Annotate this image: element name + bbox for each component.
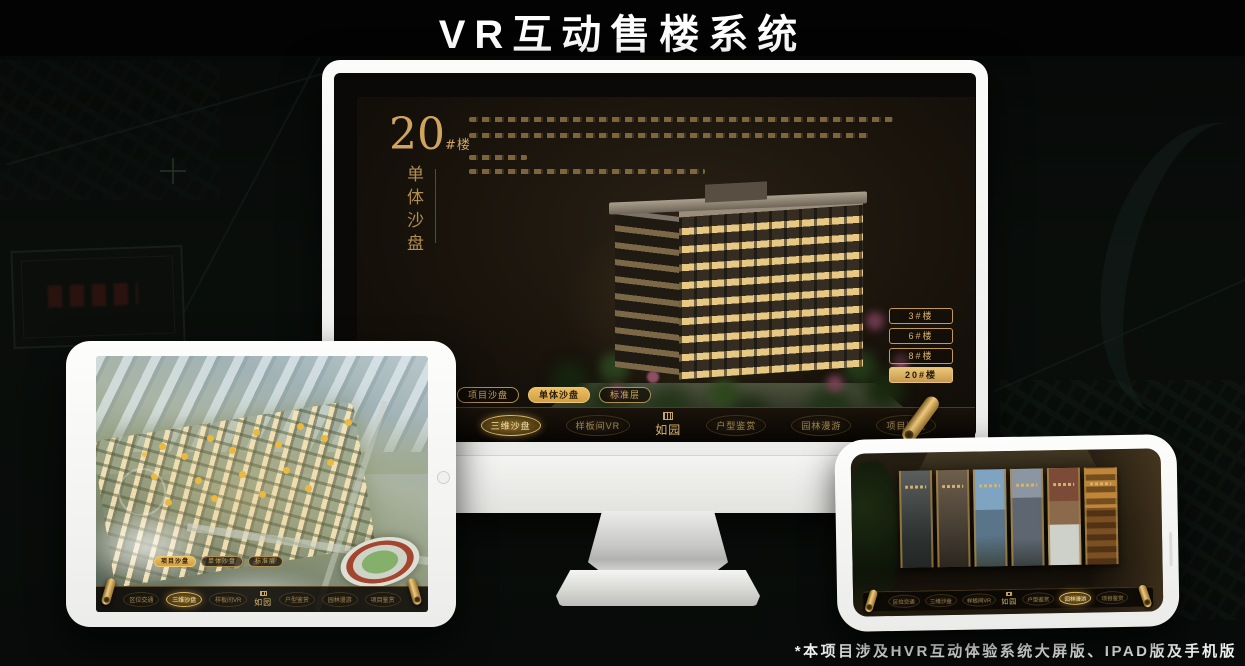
panel-caption <box>942 485 962 488</box>
description-text-line <box>469 117 893 122</box>
gallery-panel-elevation[interactable] <box>1010 468 1045 566</box>
ruyuan-seal-icon <box>663 412 673 420</box>
nav-item-unit-appreciation[interactable]: 户型鉴赏 <box>279 592 315 607</box>
building-button-8[interactable]: 8#楼 <box>889 348 953 364</box>
background-award-plaque <box>10 245 185 349</box>
gallery-panel-shelves[interactable] <box>1084 467 1119 565</box>
nav-item-model-room-vr[interactable]: 样板间VR <box>566 415 631 436</box>
ruyuan-logo-text: 如园 <box>655 421 681 438</box>
panel-caption <box>1090 482 1110 485</box>
description-text-line <box>469 169 705 174</box>
ruyuan-logo: 如园 <box>655 412 681 438</box>
panel-caption <box>979 484 999 487</box>
nav-item-location-traffic[interactable]: 区位交通 <box>888 595 920 609</box>
model-blossom-trees <box>647 371 659 383</box>
sandbox-subtabs: 项目沙盘 单体沙盘 标准层 <box>457 387 651 403</box>
nav-item-garden-roam[interactable]: 园林漫游 <box>1059 592 1091 606</box>
building-side-face <box>615 209 679 375</box>
building-front-face <box>679 199 863 380</box>
ruyuan-logo-text: 如园 <box>254 597 272 608</box>
nav-item-unit-appreciation[interactable]: 户型鉴赏 <box>706 415 766 436</box>
ruyuan-logo: 如园 <box>1001 592 1017 607</box>
nav-item-project-appreciation[interactable]: 项目鉴赏 <box>365 592 401 607</box>
gallery-panel-interior[interactable] <box>936 470 971 568</box>
panel-caption <box>1016 483 1036 486</box>
poster-canvas: VR互动售楼系统 *本项目涉及HVR互动体验系统大屏版、IPAD版及手机版 20… <box>0 0 1245 666</box>
gallery-panel-building-sky[interactable] <box>973 469 1008 567</box>
gallery-panel-autumn[interactable] <box>1047 468 1082 566</box>
subtab-project-sandbox[interactable]: 项目沙盘 <box>457 387 519 403</box>
description-text-line <box>469 133 869 138</box>
page-title: VR互动售楼系统 <box>0 2 1245 60</box>
background-city-blocks <box>0 60 220 200</box>
nav-item-model-room-vr[interactable]: 样板间VR <box>962 593 996 607</box>
building-button-6[interactable]: 6#楼 <box>889 328 953 344</box>
building-number-badges <box>142 452 147 457</box>
description-text-line <box>469 155 527 160</box>
nav-item-garden-roam[interactable]: 园林漫游 <box>791 415 851 436</box>
gallery-panel-courtyard[interactable] <box>899 470 934 568</box>
nav-item-3d-sandbox[interactable]: 三维沙盘 <box>925 594 957 608</box>
section-title-vertical: 单体沙盘 <box>401 165 426 257</box>
nav-item-garden-roam[interactable]: 园林漫游 <box>322 592 358 607</box>
nav-item-unit-appreciation[interactable]: 户型鉴赏 <box>1022 592 1054 606</box>
building-button-20[interactable]: 20#楼 <box>889 367 953 383</box>
monitor-stand-neck <box>588 511 728 575</box>
vertical-divider <box>435 169 436 243</box>
building-number-heading: 20#楼 <box>389 113 471 157</box>
nav-item-project-appreciation[interactable]: 项目鉴赏 <box>1096 591 1128 605</box>
building-penthouse <box>705 181 767 202</box>
building-button-3[interactable]: 3#楼 <box>889 308 953 324</box>
phone-screen: 区位交通 三维沙盘 样板间VR 如园 户型鉴赏 园林漫游 项目鉴赏 <box>851 448 1164 616</box>
nav-item-3d-sandbox[interactable]: 三维沙盘 <box>481 415 541 436</box>
watermark-circle <box>118 468 166 516</box>
subtab-single-sandbox[interactable]: 单体沙盘 <box>201 556 243 567</box>
nav-item-3d-sandbox[interactable]: 三维沙盘 <box>166 592 202 607</box>
tablet-navbar: 区位交通 三维沙盘 样板间VR 如园 户型鉴赏 园林漫游 项目鉴赏 <box>96 586 428 612</box>
tablet-screen: 项目沙盘 单体沙盘 标准层 区位交通 三维沙盘 样板间VR 如园 户型鉴赏 园林… <box>96 356 428 612</box>
nav-item-location-traffic[interactable]: 区位交通 <box>123 592 159 607</box>
subtab-standard-floor[interactable]: 标准层 <box>248 556 283 567</box>
subtab-standard-floor[interactable]: 标准层 <box>599 387 651 403</box>
subtab-project-sandbox[interactable]: 项目沙盘 <box>154 556 196 567</box>
panel-caption <box>1053 483 1073 486</box>
footnote: *本项目涉及HVR互动体验系统大屏版、IPAD版及手机版 <box>795 640 1237 661</box>
tablet-home-button[interactable] <box>437 471 450 484</box>
phone-device: 区位交通 三维沙盘 样板间VR 如园 户型鉴赏 园林漫游 项目鉴赏 <box>834 434 1179 632</box>
plaque-red-seal-text <box>48 283 139 308</box>
ruyuan-logo: 如园 <box>254 591 272 608</box>
panel-caption <box>906 485 926 488</box>
tablet-sandbox-subtabs: 项目沙盘 单体沙盘 标准层 <box>154 556 283 567</box>
ruyuan-seal-icon <box>1006 592 1012 596</box>
ruyuan-logo-text: 如园 <box>1001 597 1017 607</box>
subtab-single-sandbox[interactable]: 单体沙盘 <box>528 387 590 403</box>
monitor-stand-base <box>556 570 760 606</box>
nav-item-model-room-vr[interactable]: 样板间VR <box>209 592 247 607</box>
ruyuan-seal-icon <box>260 591 267 596</box>
tablet-device: 项目沙盘 单体沙盘 标准层 区位交通 三维沙盘 样板间VR 如园 户型鉴赏 园林… <box>66 341 456 627</box>
phone-side-button[interactable] <box>1169 532 1173 566</box>
